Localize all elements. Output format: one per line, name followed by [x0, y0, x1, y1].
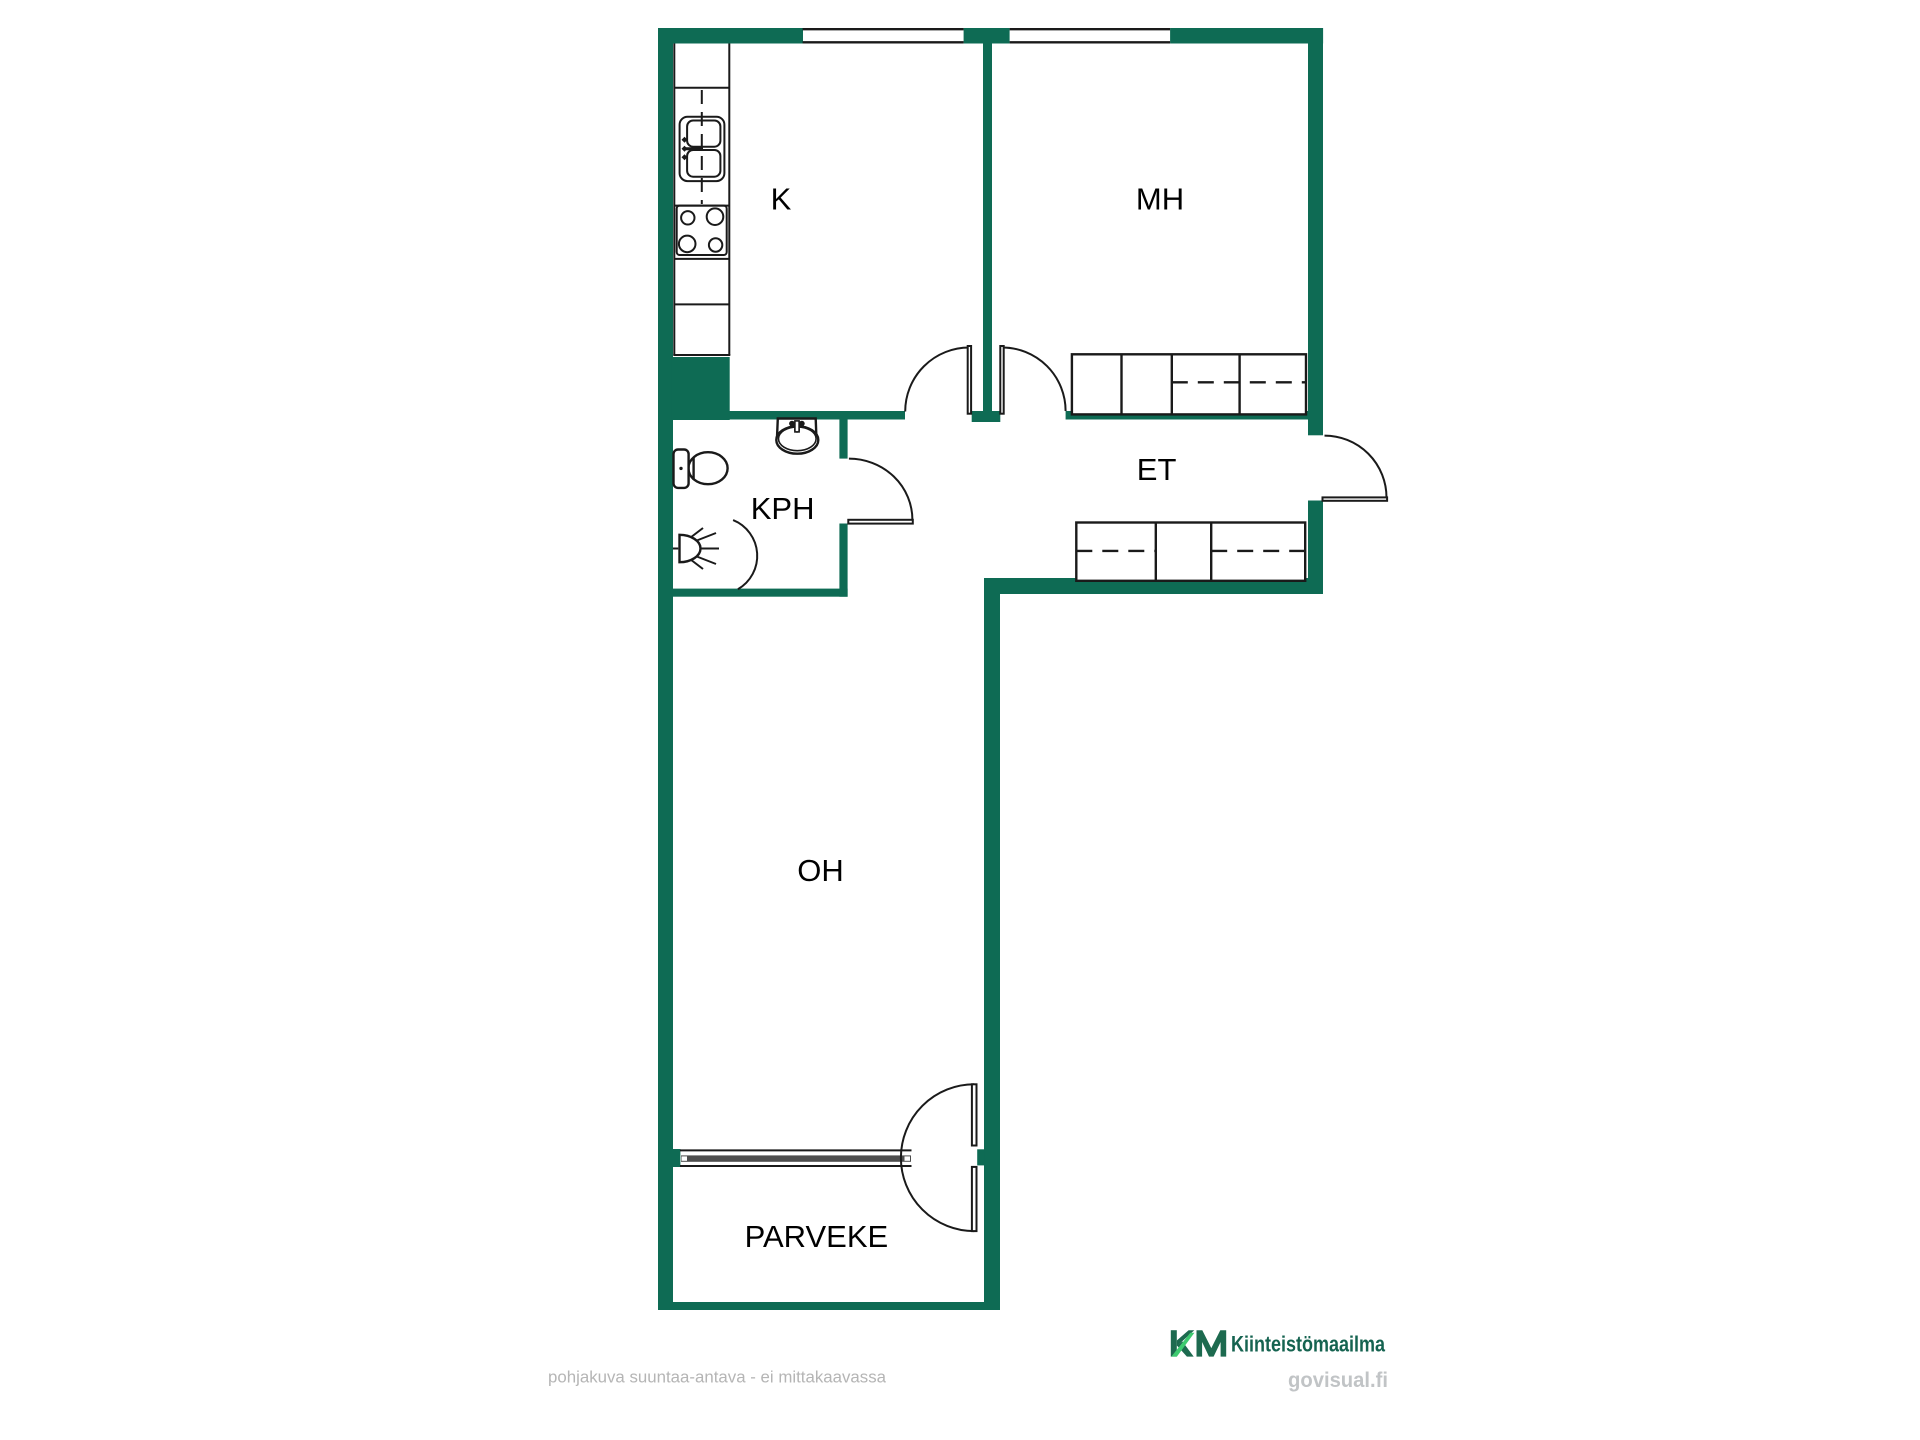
- svg-text:ET: ET: [1137, 452, 1177, 487]
- svg-text:govisual.fi: govisual.fi: [1288, 1369, 1388, 1392]
- svg-text:K: K: [771, 182, 792, 217]
- svg-text:Kiinteistömaailma: Kiinteistömaailma: [1231, 1332, 1386, 1357]
- svg-text:PARVEKE: PARVEKE: [745, 1219, 889, 1254]
- svg-text:OH: OH: [797, 853, 844, 888]
- svg-text:KPH: KPH: [751, 491, 815, 526]
- svg-text:pohjakuva suuntaa-antava - ei: pohjakuva suuntaa-antava - ei mittakaava…: [548, 1368, 887, 1387]
- svg-text:MH: MH: [1136, 182, 1184, 217]
